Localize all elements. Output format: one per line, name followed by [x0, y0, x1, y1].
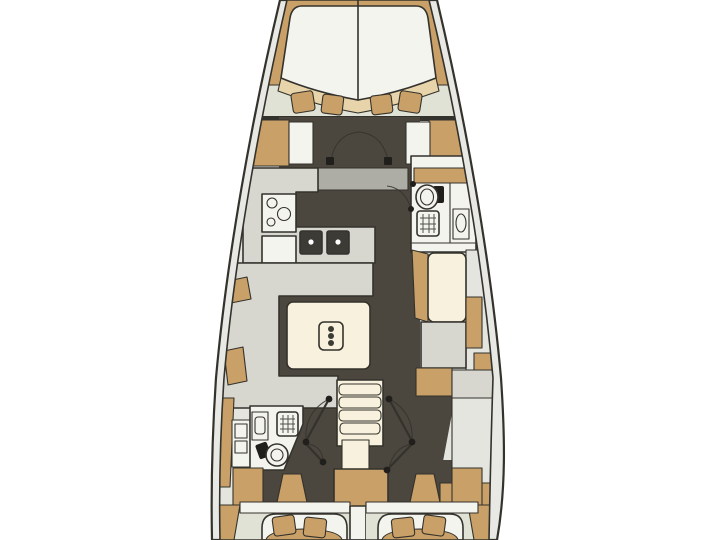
aft-shower-grate — [277, 412, 298, 436]
hull-locker — [232, 420, 250, 467]
aft-cabin-starboard — [366, 502, 496, 540]
chart-seat — [428, 253, 466, 322]
chart-desk — [421, 322, 466, 368]
aft-stbd-sill — [366, 502, 478, 513]
settee-pillow-2 — [224, 347, 247, 385]
aft-stbd-wood — [416, 368, 452, 396]
companionway-stairs — [334, 380, 388, 508]
stairs-landing — [342, 440, 369, 469]
locker-port — [289, 122, 313, 164]
salon-table — [287, 302, 370, 369]
shower-grate — [417, 211, 439, 236]
washbasin — [453, 209, 469, 239]
chart-wood-wedge — [412, 250, 428, 322]
forward-owner-cabin — [205, 0, 515, 120]
chart-wood-strip — [466, 297, 482, 348]
aft-head-sink — [252, 412, 268, 440]
aft-cabin-divider — [350, 506, 366, 540]
stove — [262, 194, 296, 232]
galley-sink — [262, 236, 296, 263]
yacht-floor-plan — [0, 0, 720, 540]
aft-cabin-port — [214, 502, 352, 540]
aft-port-sill — [240, 502, 350, 513]
entry-mat — [318, 168, 408, 190]
